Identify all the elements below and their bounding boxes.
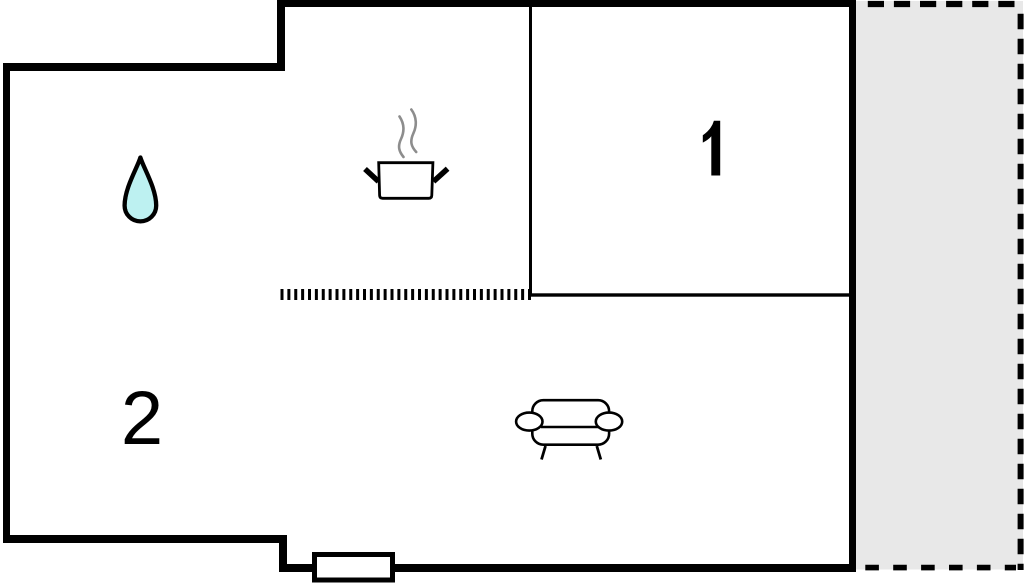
svg-text:2: 2 (121, 376, 163, 461)
